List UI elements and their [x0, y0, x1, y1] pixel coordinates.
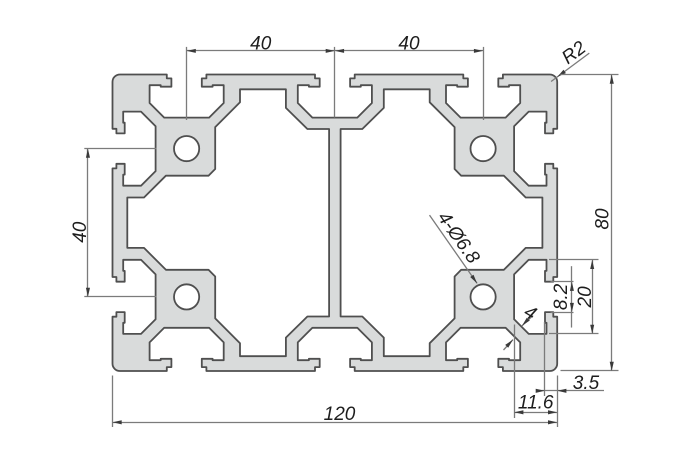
svg-text:80: 80	[593, 208, 614, 230]
svg-text:11.6: 11.6	[518, 393, 554, 414]
svg-text:40: 40	[398, 34, 420, 55]
svg-text:R2: R2	[558, 37, 590, 69]
svg-text:40: 40	[70, 221, 91, 243]
svg-text:20: 20	[575, 286, 596, 309]
svg-text:8.2: 8.2	[551, 283, 572, 310]
svg-text:4: 4	[520, 302, 540, 325]
svg-text:120: 120	[324, 404, 356, 425]
svg-text:40: 40	[250, 34, 272, 55]
svg-text:3.5: 3.5	[573, 373, 600, 394]
